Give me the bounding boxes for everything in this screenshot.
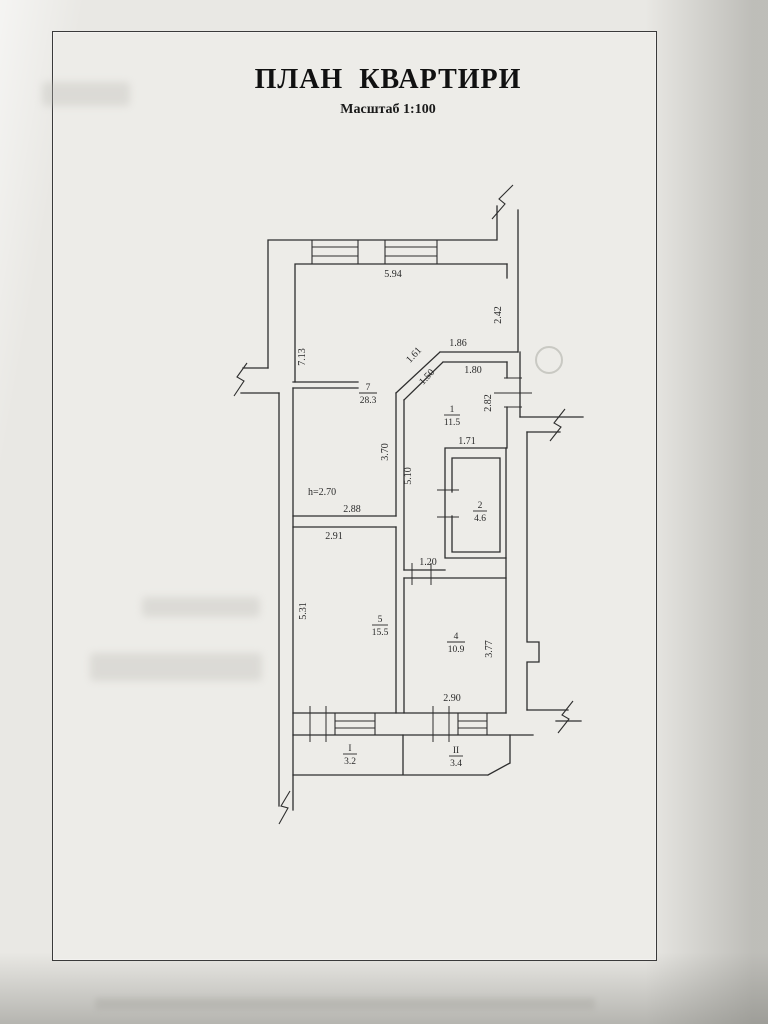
break-symbol (279, 791, 290, 824)
dim-mid-lower: 5.10 (403, 467, 414, 485)
svg-text:4.6: 4.6 (474, 514, 486, 524)
svg-text:1: 1 (450, 405, 455, 415)
balcony-label-2: II 3.4 (449, 746, 463, 769)
break-symbol (550, 409, 565, 441)
dim-door-width: 1.20 (419, 557, 437, 568)
dim-hall-right: 2.82 (483, 394, 494, 412)
dim-bath-top: 1.71 (458, 436, 476, 447)
dim-room5-left: 5.31 (298, 602, 309, 620)
svg-text:I: I (348, 744, 351, 754)
dim-room7-bottom: 2.88 (343, 504, 361, 515)
svg-text:10.9: 10.9 (448, 645, 465, 655)
room-label-1: 1 11.5 (444, 405, 461, 428)
dim-right-top: 2.42 (493, 306, 504, 324)
svg-text:4: 4 (454, 632, 459, 642)
svg-text:7: 7 (366, 383, 371, 393)
svg-text:11.5: 11.5 (444, 418, 461, 428)
dim-hall-top2: 1.80 (464, 365, 482, 376)
dim-hall-top1: 1.86 (449, 338, 467, 349)
dim-diag1: 1.61 (404, 345, 424, 365)
svg-text:28.3: 28.3 (360, 396, 377, 406)
dim-room4-right: 3.77 (484, 640, 495, 658)
dim-left-height: 7.13 (297, 348, 308, 366)
svg-text:2: 2 (478, 501, 483, 511)
svg-text:3.4: 3.4 (450, 759, 462, 769)
room-label-2: 2 4.6 (473, 501, 487, 524)
svg-text:3.2: 3.2 (344, 757, 356, 767)
break-symbol (558, 701, 573, 733)
dim-room4-bottom: 2.90 (443, 693, 461, 704)
room-label-4: 4 10.9 (447, 632, 465, 655)
break-symbol (492, 185, 513, 219)
dim-top-width: 5.94 (384, 269, 402, 280)
hole-punch-mark (536, 347, 562, 373)
dim-mid-upper: 3.70 (380, 443, 391, 461)
dim-room5-top: 2.91 (325, 531, 343, 542)
floor-plan-svg: 5.94 2.42 7.13 1.86 1.80 1.61 1.50 2.82 … (0, 0, 768, 1024)
door-ticks (310, 490, 459, 742)
svg-text:II: II (453, 746, 459, 756)
svg-text:15.5: 15.5 (372, 628, 389, 638)
room-label-7: 7 28.3 (359, 383, 377, 406)
balcony-label-1: I 3.2 (343, 744, 357, 767)
scanned-page: ПЛАН КВАРТИРИ Масштаб 1:100 (0, 0, 768, 1024)
height-label: h=2.70 (308, 487, 336, 498)
wall-lines (241, 206, 583, 810)
svg-text:5: 5 (378, 615, 383, 625)
room-label-5: 5 15.5 (372, 615, 389, 638)
